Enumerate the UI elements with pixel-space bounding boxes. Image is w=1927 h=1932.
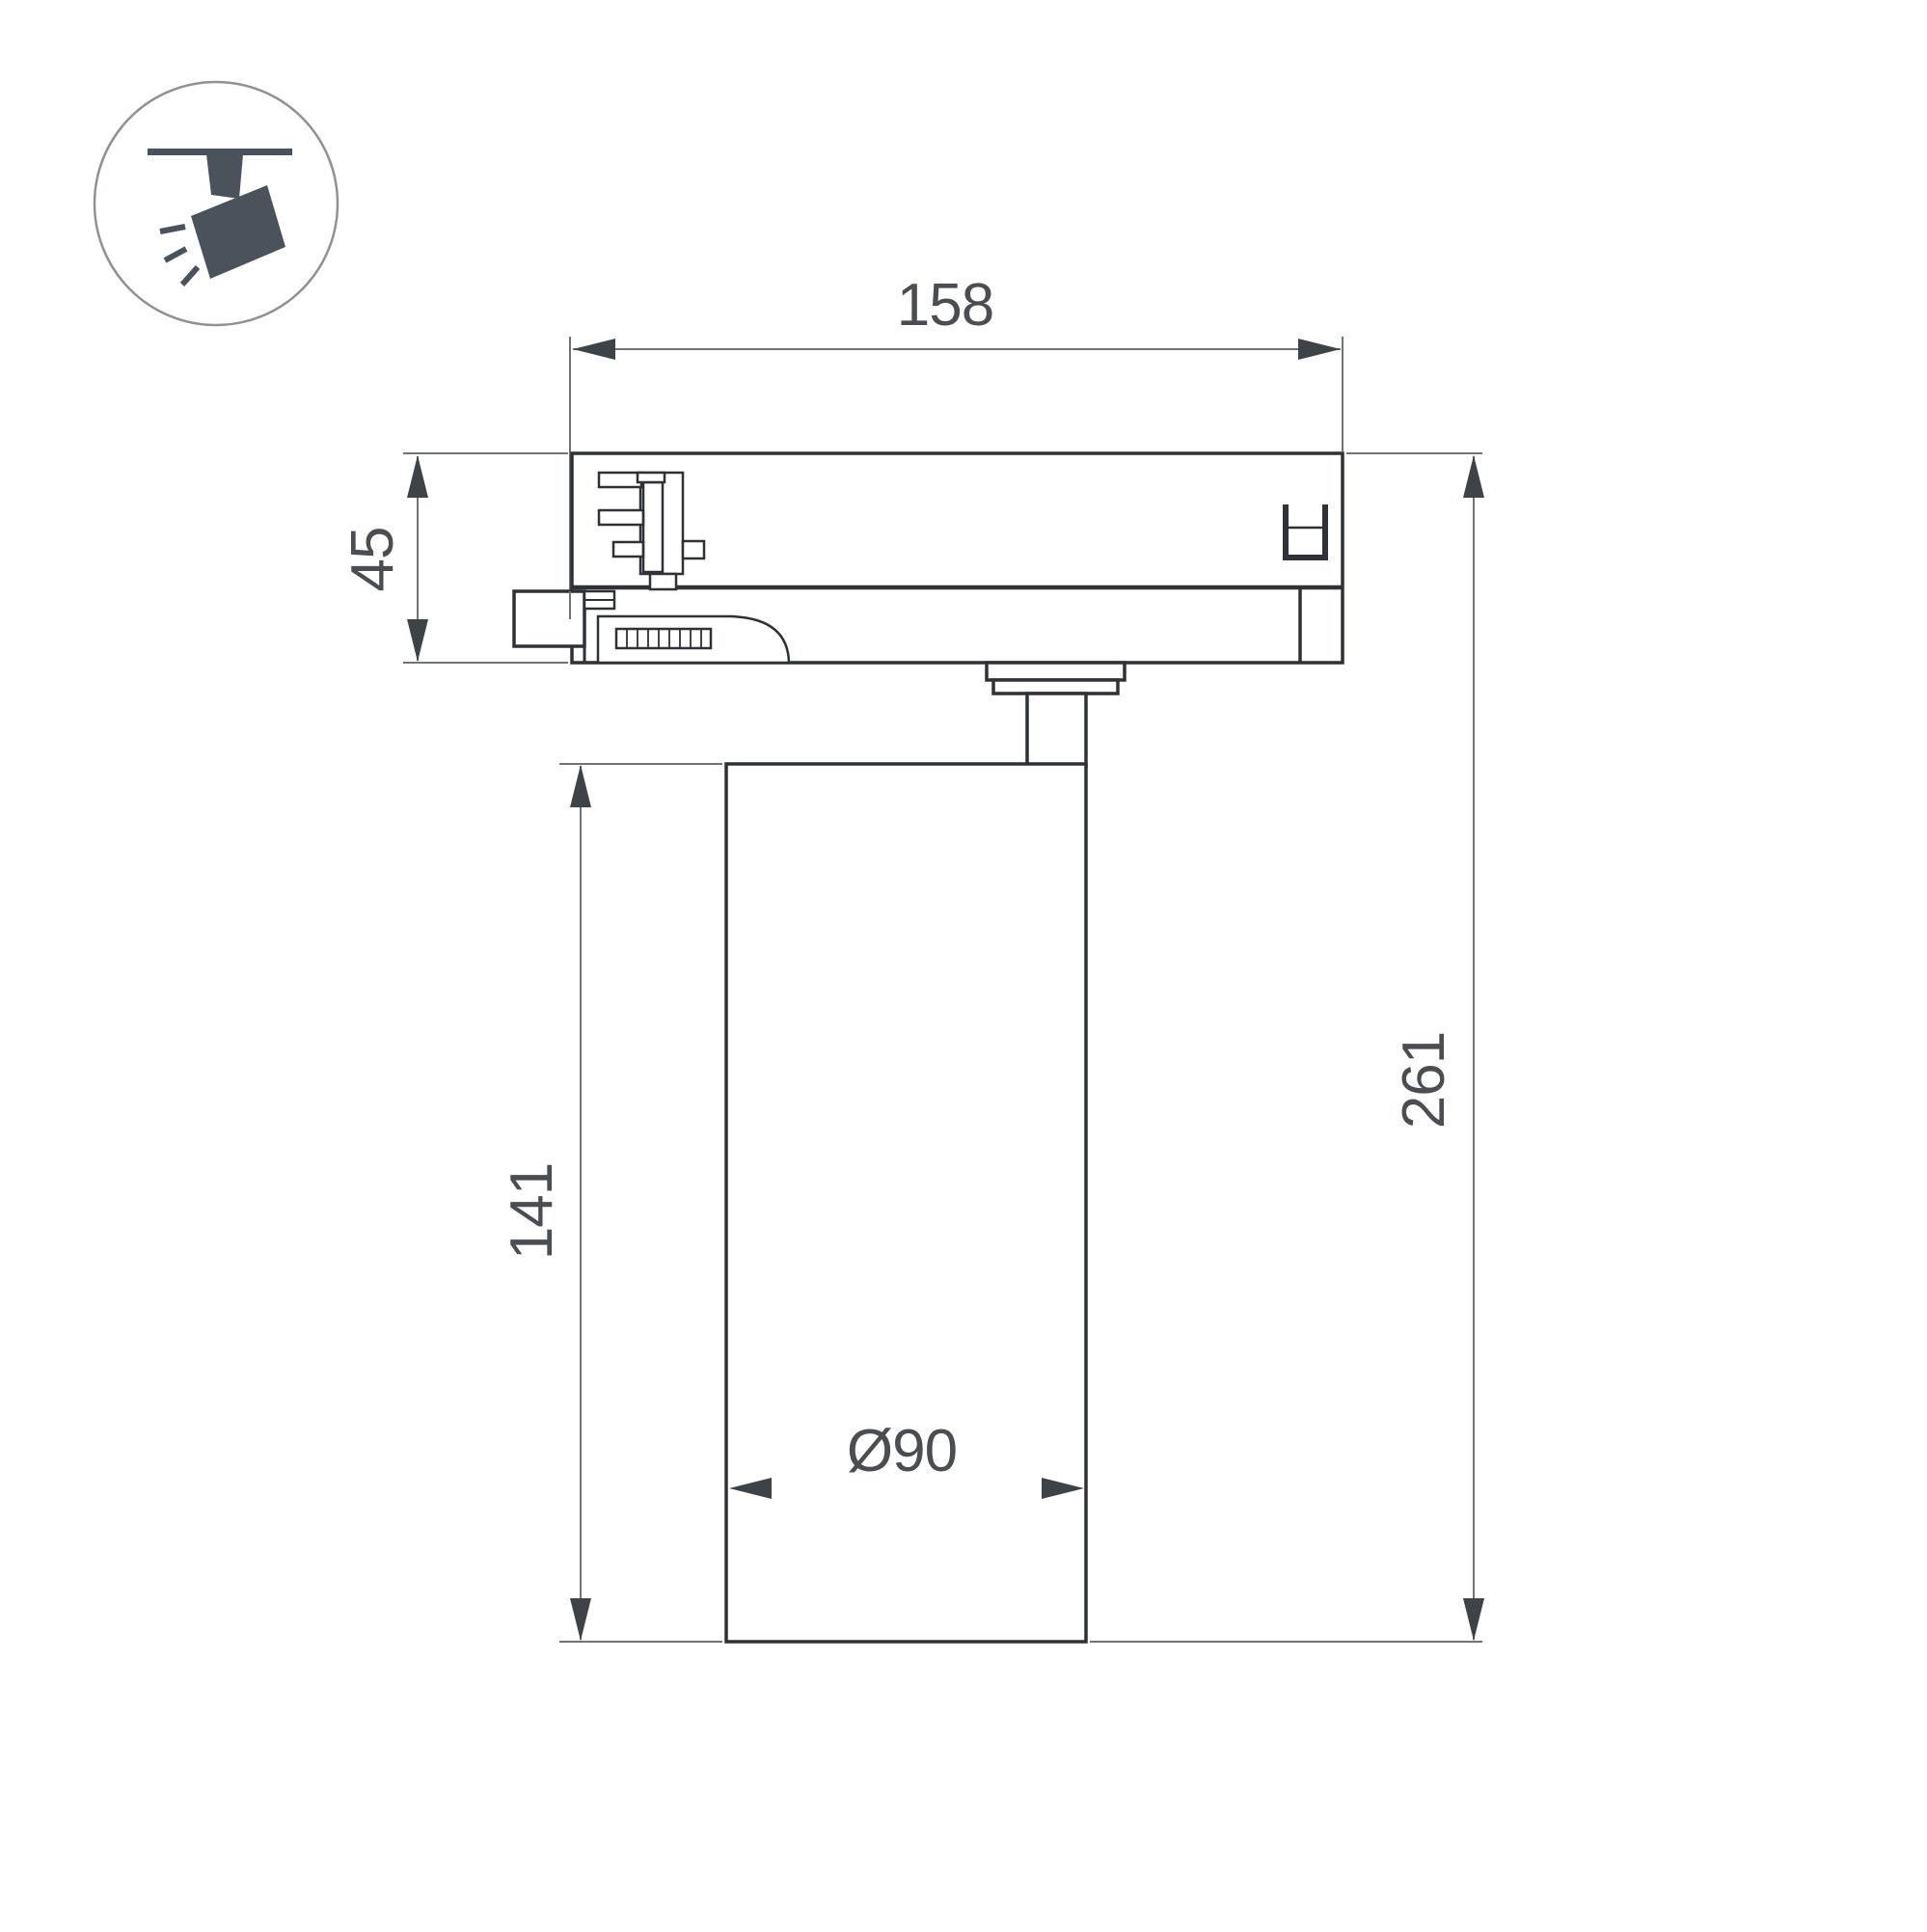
dimension-label-track-length: 158 xyxy=(897,272,993,339)
icon-track-bar xyxy=(148,149,292,155)
dimension-label-adapter-height: 45 xyxy=(339,528,406,592)
dimension-label-total-height: 261 xyxy=(1391,1032,1457,1129)
icon-circle xyxy=(95,82,338,325)
icon-stem xyxy=(206,154,243,199)
dimension-drawing: 158 45 141 261 Ø90 xyxy=(0,0,1927,1927)
track-spotlight-icon xyxy=(95,82,338,325)
technical-drawing-page: 158 45 141 261 Ø90 xyxy=(0,0,1927,1927)
dimension-label-body-length: 141 xyxy=(499,1163,565,1260)
mounting-flange-lower xyxy=(993,680,1118,694)
stem xyxy=(1027,694,1086,766)
dimension-label-body-diameter: Ø90 xyxy=(847,1418,957,1484)
mounting-flange-upper xyxy=(987,663,1125,680)
release-latch xyxy=(514,591,584,646)
lamp-body xyxy=(726,764,1086,1642)
